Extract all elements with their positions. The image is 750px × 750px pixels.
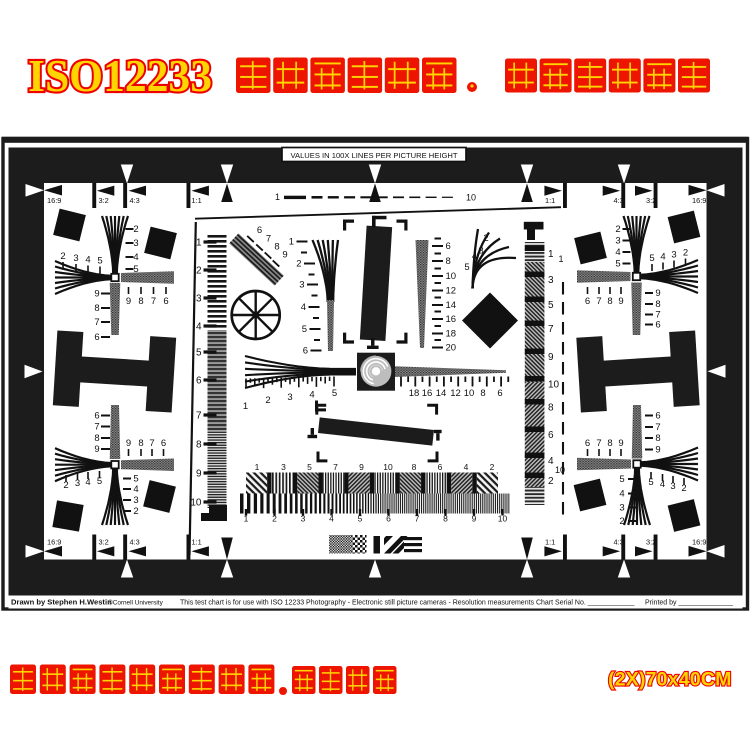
- svg-text:3: 3: [671, 250, 676, 261]
- svg-text:6: 6: [548, 430, 554, 441]
- svg-text:8: 8: [94, 303, 99, 314]
- svg-text:9: 9: [618, 296, 623, 307]
- svg-text:16:9: 16:9: [692, 538, 706, 547]
- svg-text:5: 5: [332, 388, 337, 399]
- svg-text:2: 2: [683, 248, 688, 259]
- svg-text:3:2: 3:2: [99, 538, 109, 547]
- svg-text:1: 1: [196, 238, 202, 249]
- svg-text:3: 3: [619, 503, 624, 514]
- svg-text:5: 5: [619, 474, 624, 485]
- svg-text:8: 8: [274, 242, 279, 253]
- svg-text:2: 2: [548, 476, 554, 487]
- svg-text:2: 2: [619, 516, 624, 527]
- svg-text:12: 12: [446, 286, 457, 297]
- svg-text:6: 6: [161, 438, 166, 449]
- svg-text:12: 12: [450, 388, 461, 399]
- svg-text:6: 6: [655, 320, 660, 331]
- svg-text:6: 6: [585, 438, 590, 449]
- svg-text:4: 4: [133, 484, 138, 495]
- svg-text:4: 4: [615, 247, 620, 258]
- svg-text:14: 14: [446, 300, 457, 311]
- svg-text:8: 8: [548, 403, 554, 414]
- svg-text:7: 7: [548, 324, 554, 335]
- svg-text:1: 1: [548, 249, 554, 260]
- svg-text:VALUES IN 100X LINES PER PICTU: VALUES IN 100X LINES PER PICTURE HEIGHT: [291, 151, 458, 160]
- svg-text:3: 3: [75, 478, 80, 489]
- svg-text:2: 2: [490, 462, 495, 472]
- svg-text:7: 7: [94, 422, 99, 433]
- svg-text:9: 9: [126, 296, 131, 307]
- svg-text:9: 9: [618, 438, 623, 449]
- svg-text:2: 2: [133, 224, 138, 235]
- svg-text:6: 6: [196, 376, 202, 387]
- svg-text:6: 6: [163, 296, 168, 307]
- svg-text:1: 1: [275, 192, 280, 202]
- svg-text:18: 18: [409, 388, 420, 399]
- svg-text:8: 8: [446, 256, 451, 267]
- svg-text:7: 7: [596, 438, 601, 449]
- svg-text:14: 14: [436, 388, 447, 399]
- svg-text:3:2: 3:2: [646, 196, 656, 205]
- svg-text:8: 8: [138, 296, 143, 307]
- svg-text:5: 5: [133, 264, 138, 275]
- svg-text:3: 3: [73, 253, 78, 264]
- svg-text:7: 7: [151, 296, 156, 307]
- svg-text:18: 18: [446, 329, 457, 340]
- svg-text:(2X)70x40CM: (2X)70x40CM: [608, 669, 732, 691]
- svg-text:©Cornell University: ©Cornell University: [108, 598, 164, 606]
- svg-text:9: 9: [196, 469, 202, 480]
- svg-text:5: 5: [648, 477, 653, 488]
- svg-text:ISO12233: ISO12233: [28, 50, 212, 101]
- svg-text:5: 5: [196, 348, 202, 359]
- svg-text:10: 10: [190, 498, 202, 509]
- svg-text:3: 3: [548, 275, 554, 286]
- svg-text:5: 5: [548, 300, 554, 311]
- svg-text:2: 2: [63, 480, 68, 491]
- svg-text:8: 8: [607, 296, 612, 307]
- svg-text:7: 7: [333, 462, 338, 472]
- svg-text:9: 9: [655, 288, 660, 299]
- svg-text:3: 3: [670, 481, 675, 492]
- svg-text:4: 4: [85, 477, 90, 488]
- svg-text:8: 8: [607, 438, 612, 449]
- svg-text:3: 3: [615, 236, 620, 247]
- svg-text:7: 7: [266, 234, 271, 245]
- svg-text:3: 3: [196, 294, 202, 305]
- svg-text:Printed by ______________: Printed by ______________: [645, 599, 733, 606]
- svg-text:3:2: 3:2: [646, 538, 656, 547]
- svg-text:1:1: 1:1: [192, 538, 202, 547]
- svg-text:4: 4: [309, 390, 314, 401]
- svg-text:8: 8: [196, 440, 202, 451]
- svg-text:6: 6: [257, 225, 262, 236]
- svg-text:6: 6: [497, 388, 502, 399]
- svg-text:7: 7: [596, 296, 601, 307]
- svg-text:2: 2: [483, 233, 488, 244]
- svg-text:7: 7: [149, 438, 154, 449]
- svg-text:5: 5: [97, 476, 102, 487]
- svg-text:1: 1: [559, 254, 564, 264]
- svg-text:6: 6: [303, 346, 308, 357]
- svg-text:4:3: 4:3: [614, 538, 624, 547]
- svg-text:5: 5: [302, 324, 307, 335]
- svg-text:8: 8: [480, 388, 485, 399]
- svg-text:3:2: 3:2: [99, 196, 109, 205]
- svg-text:4:3: 4:3: [614, 196, 624, 205]
- svg-text:9: 9: [655, 445, 660, 456]
- svg-text:9: 9: [282, 250, 287, 261]
- svg-text:4: 4: [472, 251, 477, 262]
- svg-text:10: 10: [466, 193, 476, 203]
- svg-text:9: 9: [94, 289, 99, 300]
- svg-text:Drawn by Stephen H.Westin: Drawn by Stephen H.Westin: [11, 598, 112, 607]
- svg-text:5: 5: [615, 259, 620, 270]
- svg-text:6: 6: [94, 411, 99, 422]
- svg-text:2: 2: [133, 506, 138, 517]
- svg-text:1: 1: [243, 401, 248, 412]
- svg-text:6: 6: [446, 241, 451, 252]
- svg-text:This test chart is for use wit: This test chart is for use with ISO 1223…: [180, 599, 635, 606]
- svg-text:6: 6: [585, 296, 590, 307]
- svg-text:5: 5: [464, 262, 469, 273]
- svg-text:2: 2: [296, 259, 301, 270]
- svg-text:16: 16: [446, 314, 457, 325]
- svg-text:10: 10: [383, 462, 393, 472]
- svg-text:4: 4: [464, 462, 469, 472]
- svg-text:4: 4: [301, 302, 306, 313]
- svg-text:9: 9: [548, 352, 554, 363]
- svg-text:9: 9: [94, 444, 99, 455]
- svg-text:10: 10: [446, 271, 457, 282]
- svg-text:1:1: 1:1: [545, 538, 555, 547]
- svg-text:7: 7: [655, 422, 660, 433]
- svg-text:1: 1: [289, 237, 294, 248]
- svg-text:20: 20: [446, 343, 457, 354]
- svg-text:7: 7: [196, 411, 202, 422]
- svg-text:16:9: 16:9: [47, 538, 61, 547]
- svg-text:4: 4: [660, 479, 665, 490]
- svg-text:2: 2: [196, 266, 202, 277]
- svg-text:10: 10: [548, 380, 560, 391]
- svg-text:8: 8: [655, 299, 660, 310]
- svg-text:2: 2: [265, 395, 270, 406]
- svg-text:4: 4: [619, 489, 624, 500]
- svg-text:16:9: 16:9: [692, 196, 706, 205]
- svg-text:6: 6: [438, 462, 443, 472]
- svg-text:6: 6: [94, 332, 99, 343]
- svg-text:1:1: 1:1: [545, 196, 555, 205]
- svg-text:5: 5: [649, 253, 654, 264]
- svg-text:4: 4: [196, 322, 202, 333]
- svg-text:4:3: 4:3: [130, 196, 140, 205]
- svg-text:8: 8: [412, 462, 417, 472]
- svg-text:16:9: 16:9: [47, 196, 61, 205]
- svg-text:8: 8: [655, 433, 660, 444]
- svg-text:2: 2: [681, 483, 686, 494]
- svg-text:6: 6: [655, 411, 660, 422]
- svg-text:4:3: 4:3: [130, 538, 140, 547]
- svg-text:4: 4: [133, 252, 138, 263]
- svg-text:2: 2: [615, 224, 620, 235]
- svg-text:10: 10: [464, 388, 475, 399]
- svg-text:9: 9: [359, 462, 364, 472]
- svg-text:3: 3: [133, 495, 138, 506]
- svg-text:9: 9: [126, 438, 131, 449]
- svg-text:3: 3: [133, 238, 138, 249]
- svg-text:4: 4: [85, 255, 90, 266]
- svg-text:3: 3: [299, 280, 304, 291]
- svg-text:8: 8: [94, 433, 99, 444]
- svg-text:16: 16: [422, 388, 433, 399]
- svg-text:8: 8: [138, 438, 143, 449]
- svg-text:5: 5: [307, 462, 312, 472]
- svg-text:5: 5: [133, 474, 138, 485]
- svg-text:10: 10: [555, 465, 565, 475]
- svg-text:1:1: 1:1: [192, 196, 202, 205]
- svg-text:7: 7: [94, 317, 99, 328]
- svg-text:3: 3: [281, 462, 286, 472]
- svg-text:4: 4: [660, 252, 665, 263]
- svg-text:3: 3: [287, 392, 292, 403]
- svg-text:2: 2: [60, 251, 65, 262]
- svg-text:3: 3: [478, 246, 483, 257]
- svg-text:5: 5: [97, 256, 102, 267]
- svg-text:1: 1: [255, 462, 260, 472]
- svg-text:4: 4: [548, 456, 554, 467]
